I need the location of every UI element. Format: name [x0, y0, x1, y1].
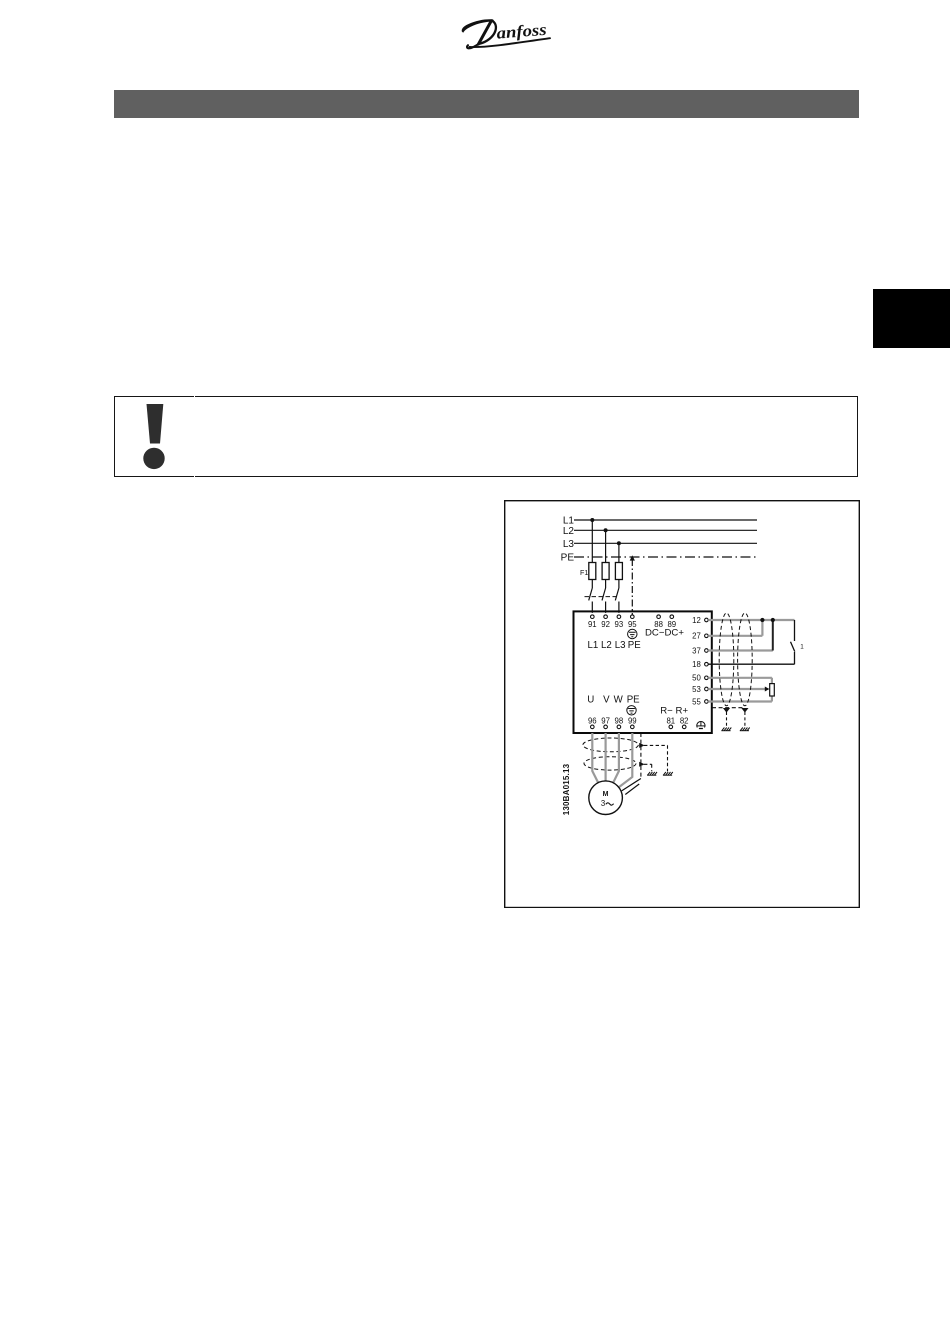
svg-text:50: 50: [692, 674, 701, 683]
svg-text:91: 91: [588, 620, 597, 629]
svg-text:97: 97: [601, 716, 610, 725]
svg-text:37: 37: [692, 646, 701, 655]
svg-text:L1: L1: [588, 640, 599, 651]
svg-text:DC−DC+: DC−DC+: [645, 627, 684, 638]
svg-text:PE: PE: [628, 640, 641, 651]
svg-text:18: 18: [692, 660, 701, 669]
svg-text:130BA015.13: 130BA015.13: [562, 763, 571, 815]
svg-text:12: 12: [692, 616, 701, 625]
svg-text:U: U: [587, 695, 594, 706]
svg-text:53: 53: [692, 685, 701, 694]
svg-text:L2: L2: [601, 640, 612, 651]
svg-text:R+: R+: [676, 706, 689, 717]
svg-text:W: W: [614, 695, 624, 706]
svg-text:R−: R−: [660, 706, 673, 717]
svg-text:L3: L3: [615, 640, 626, 651]
svg-text:27: 27: [692, 632, 701, 641]
svg-text:M: M: [603, 791, 609, 798]
svg-text:98: 98: [615, 716, 624, 725]
svg-text:3: 3: [601, 799, 605, 808]
svg-text:V: V: [603, 695, 610, 706]
svg-text:PE: PE: [627, 695, 640, 706]
svg-text:L2: L2: [563, 526, 575, 537]
svg-text:99: 99: [628, 716, 637, 725]
svg-text:92: 92: [601, 620, 610, 629]
svg-text:55: 55: [692, 697, 701, 706]
svg-text:95: 95: [628, 620, 637, 629]
svg-text:93: 93: [615, 620, 624, 629]
svg-text:81: 81: [666, 716, 675, 725]
svg-text:L3: L3: [563, 539, 575, 550]
svg-text:anfoss: anfoss: [496, 20, 547, 43]
svg-text:PE: PE: [561, 553, 575, 564]
svg-text:F1: F1: [580, 568, 588, 577]
svg-text:82: 82: [680, 716, 689, 725]
svg-text:1: 1: [800, 644, 804, 651]
svg-text:96: 96: [588, 716, 597, 725]
